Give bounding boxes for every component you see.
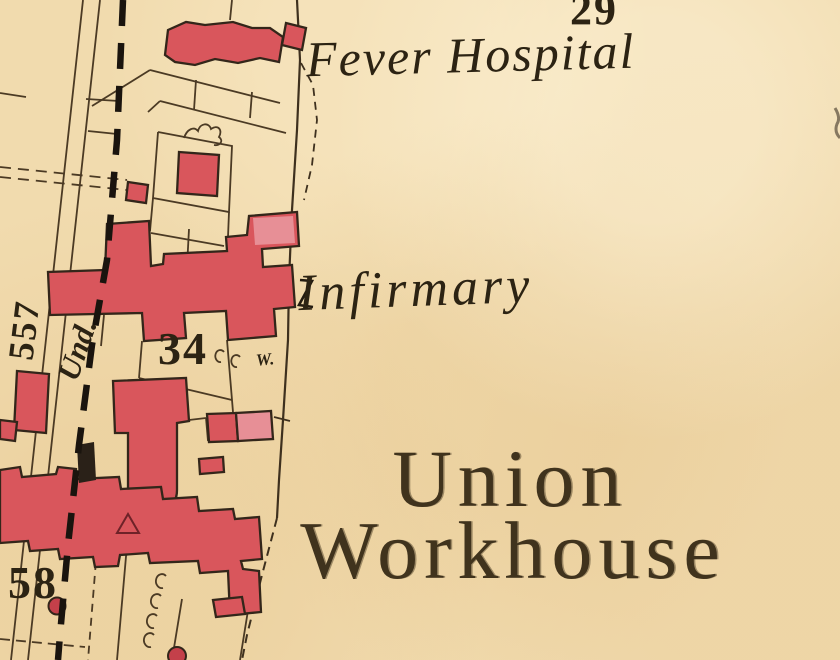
fever-hospital-label: Fever Hospital	[305, 26, 636, 85]
outbuilding	[207, 413, 238, 442]
outbuilding	[177, 152, 219, 196]
outbuilding	[126, 182, 148, 203]
outbuilding	[199, 457, 224, 474]
gate-curl	[156, 574, 166, 588]
infirmary-label: Infirmary	[297, 260, 534, 320]
gate-curl	[144, 633, 154, 647]
plot-link-line	[88, 131, 117, 134]
edge-text-fragment	[835, 108, 840, 138]
outbuilding	[213, 597, 245, 617]
side-building	[14, 371, 49, 433]
parcel-number-557: 557	[1, 286, 47, 374]
well-label: W.	[255, 350, 275, 369]
gate-curl	[215, 350, 224, 362]
infirmary-wing-light	[253, 216, 295, 245]
parcel-number-34: 34	[158, 326, 208, 372]
parcel-number-58: 58	[8, 560, 58, 606]
field-line	[0, 93, 26, 97]
buildings-layer	[0, 22, 306, 617]
gate-curl	[151, 594, 161, 608]
side-building	[0, 420, 17, 441]
union-workhouse-label-line2: Workhouse	[283, 510, 743, 592]
outbuilding-light	[236, 411, 273, 441]
fever-hospital-building	[165, 22, 283, 65]
outbuilding	[282, 23, 306, 50]
well-dot-icon	[168, 647, 186, 660]
gate-curl	[147, 614, 157, 628]
gate-curl	[231, 355, 240, 367]
historic-os-map: 29 Fever Hospital Infirmary 34 W. 557 Un…	[0, 0, 840, 660]
